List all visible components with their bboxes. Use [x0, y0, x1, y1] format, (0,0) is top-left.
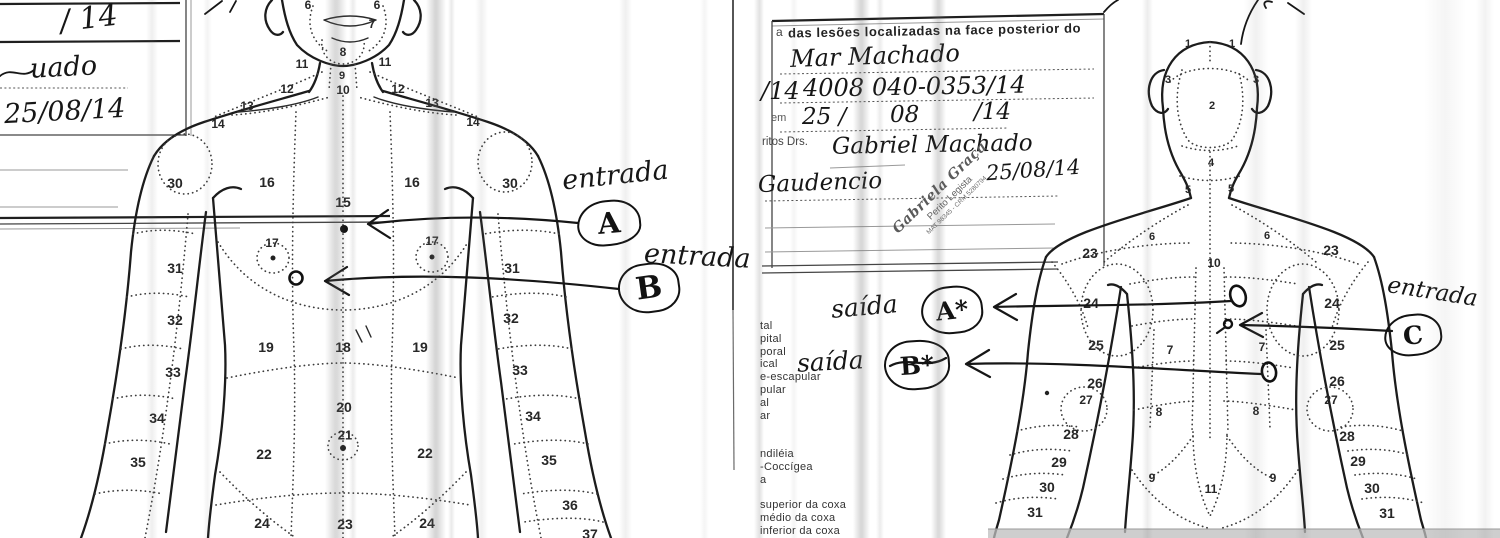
legend-line: -Coccígea: [760, 461, 846, 474]
page-divider-line: [733, 0, 734, 470]
region-number: 31: [1379, 505, 1395, 521]
region-number: 28: [1339, 428, 1355, 444]
legend-line: ar: [760, 410, 846, 423]
posterior-form-num1: /14: [761, 79, 800, 103]
region-number: 25: [1088, 337, 1104, 353]
anterior-form-name-fragment: uado: [29, 52, 97, 82]
region-number: 15: [335, 194, 351, 210]
posterior-form-name: Mar Machado: [790, 41, 961, 71]
region-number: 5: [1185, 184, 1191, 196]
anterior-form-case-number: / 14: [58, 1, 119, 38]
region-number: 32: [167, 312, 183, 328]
region-number: 7: [1167, 343, 1174, 357]
posterior-form-num3: 040-0353/14: [872, 73, 1026, 100]
region-number: 27: [1079, 393, 1093, 407]
posterior-form-expert2: Gaudencio: [758, 170, 883, 197]
region-number: 37: [582, 526, 598, 538]
region-number: 28: [1063, 426, 1079, 442]
region-number: 35: [541, 452, 557, 468]
region-number: 34: [525, 408, 541, 424]
legend-line: al: [760, 397, 846, 410]
region-number: 22: [417, 445, 433, 461]
region-number: 7: [369, 17, 376, 31]
scanned-forensic-body-diagram: 6678111191210121313141430161516301717313…: [0, 0, 1500, 538]
region-number: 20: [336, 399, 352, 415]
region-number: 30: [502, 175, 518, 191]
region-number: 31: [504, 260, 520, 276]
region-number: 6: [1149, 231, 1155, 243]
region-number: 24: [254, 515, 270, 531]
region-number: 3: [1165, 74, 1171, 86]
region-number: 26: [1329, 373, 1345, 389]
wound-a-letter: A: [596, 205, 621, 241]
wound-b-letter: B: [634, 268, 665, 307]
posterior-form-drs-label: ritos Drs.: [762, 137, 808, 149]
region-number: 5: [1228, 183, 1234, 195]
region-number: 10: [336, 83, 350, 97]
legend-line: [760, 422, 846, 435]
legend-line: ndiléia: [760, 448, 846, 461]
region-number: 14: [211, 117, 225, 131]
region-number: 9: [1270, 471, 1277, 485]
legend-line: médio da coxa: [760, 512, 846, 525]
posterior-form-date-day: 25 /: [802, 106, 846, 129]
region-number: 11: [1205, 482, 1218, 496]
region-number: 1: [1229, 38, 1235, 50]
region-number: 12: [280, 82, 294, 96]
region-number: 13: [240, 99, 254, 113]
wound-b-exit-letter: B*: [899, 349, 935, 380]
region-number: 3: [1253, 74, 1259, 86]
legend-line: pital: [760, 333, 846, 346]
legend-line: [760, 435, 846, 448]
region-number: 2: [1209, 100, 1215, 112]
region-number: 9: [1149, 471, 1156, 485]
wound-c-letter: C: [1402, 320, 1425, 351]
region-number: 23: [1323, 242, 1339, 258]
region-number: 35: [130, 454, 146, 470]
scan-bottom-band: [988, 529, 1500, 538]
region-number: 8: [340, 45, 347, 59]
anterior-figure-outline: [81, 0, 611, 538]
region-number: 18: [335, 339, 351, 355]
region-number: 11: [296, 57, 309, 71]
region-number: 30: [1039, 479, 1055, 495]
anterior-form-date: 25/08/14: [3, 95, 126, 128]
legend-line: pular: [760, 384, 846, 397]
posterior-form-header-partial: a: [776, 26, 783, 38]
region-number: 8: [1156, 405, 1163, 419]
region-number: 30: [1364, 480, 1380, 496]
region-number: 6: [374, 0, 381, 12]
region-number: 9: [339, 70, 345, 82]
region-number: 13: [425, 96, 439, 110]
legend-line: inferior da coxa: [760, 525, 846, 538]
posterior-form-num2: 4008: [803, 76, 864, 100]
region-number: 31: [1027, 504, 1043, 520]
region-number: 29: [1051, 454, 1067, 470]
region-number: 7: [1259, 340, 1266, 354]
posterior-form-date-month: 08: [890, 104, 919, 127]
posterior-form-em-label: em: [771, 113, 786, 124]
region-number: 19: [412, 339, 428, 355]
posterior-wound-marks: [1045, 284, 1278, 396]
anterior-region-numbers: 6678111191210121313141430161516301717313…: [130, 0, 598, 538]
region-number: 36: [562, 497, 578, 513]
region-number: 14: [466, 115, 480, 129]
region-number: 29: [1350, 453, 1366, 469]
region-number: 22: [256, 446, 272, 462]
region-number: 31: [167, 260, 183, 276]
legend-line: a: [760, 474, 846, 487]
region-number: 24: [1083, 295, 1099, 311]
legend-line: [760, 486, 846, 499]
anterior-wound-marks: [271, 225, 435, 451]
posterior-region-numbers: 1133245566232310242425772526262727882828…: [1027, 38, 1395, 521]
region-number: 1: [1185, 38, 1191, 50]
region-number: 24: [419, 515, 435, 531]
region-number: 12: [391, 82, 405, 96]
region-number: 16: [259, 174, 275, 190]
region-number: 8: [1253, 404, 1260, 418]
region-number: 33: [165, 364, 181, 380]
region-number: 17: [265, 236, 279, 250]
wound-a-exit-label: saída: [830, 291, 899, 322]
region-number: 26: [1087, 375, 1103, 391]
wound-b-exit-label: saída: [796, 347, 864, 375]
legend-line: superior da coxa: [760, 499, 846, 512]
region-number: 25: [1329, 337, 1345, 353]
region-number: 10: [1207, 256, 1221, 270]
region-number: 17: [425, 234, 439, 248]
region-number: 33: [512, 362, 528, 378]
region-number: 24: [1324, 295, 1340, 311]
region-number: 19: [258, 339, 274, 355]
region-number: 11: [379, 55, 392, 69]
region-number: 27: [1324, 393, 1338, 407]
region-number: 6: [1264, 230, 1270, 242]
region-number: 4: [1208, 157, 1215, 169]
region-number: 32: [503, 310, 519, 326]
region-number: 23: [337, 516, 353, 532]
region-number: 34: [149, 410, 165, 426]
region-number: 16: [404, 174, 420, 190]
region-number: 6: [305, 0, 312, 12]
region-number: 21: [338, 428, 352, 443]
region-number: 23: [1082, 245, 1098, 261]
region-number: 30: [167, 175, 183, 191]
wound-a-exit-letter: A*: [934, 294, 969, 326]
